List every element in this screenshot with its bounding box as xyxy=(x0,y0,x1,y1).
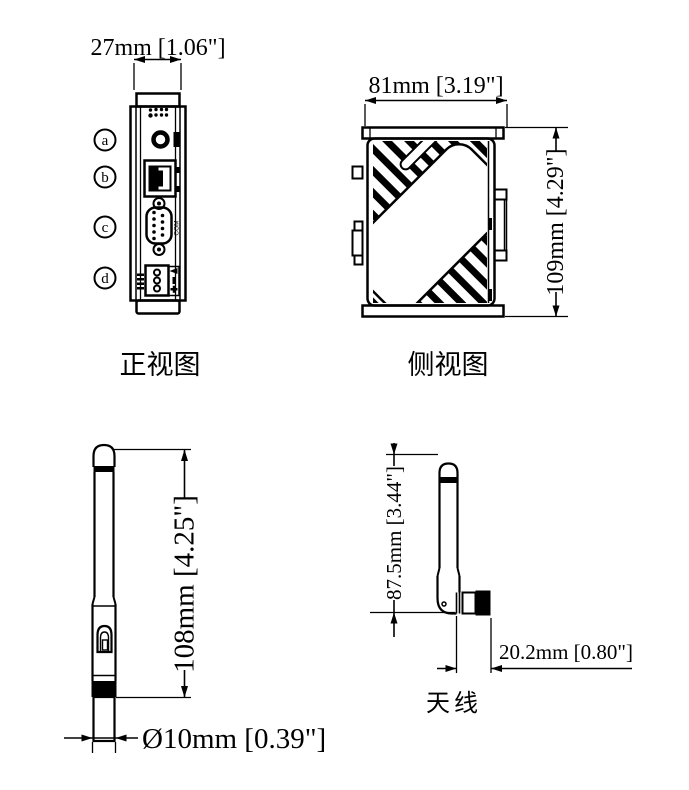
callout-b-letter: b xyxy=(101,170,109,186)
antenna-connector-base xyxy=(94,697,115,741)
antenna-connector-port xyxy=(154,132,180,147)
dimension-drawing-page: 27mm [1.06"] xyxy=(0,0,689,790)
side-width-dim-text: 81mm [3.19"] xyxy=(368,73,503,99)
antenna-front-view: 108mm [4.25"] Ø10mm [0.39"] xyxy=(64,445,326,755)
antenna-length-dimension: 108mm [4.25"] xyxy=(114,450,202,698)
side-view: 81mm [3.19"] xyxy=(339,73,571,380)
antenna2-nut xyxy=(476,591,491,616)
callout-c-letter: c xyxy=(102,220,109,236)
antenna2-connector-dimension: 20.2mm [0.80"] xyxy=(437,616,633,673)
led-indicators xyxy=(148,108,168,118)
db9-pins xyxy=(152,211,164,241)
reset-notch xyxy=(174,132,180,147)
antenna2-top-band xyxy=(440,477,458,483)
side-height-dimension: 109mm [4.29"] xyxy=(505,128,571,317)
technical-drawing-canvas: 27mm [1.06"] xyxy=(0,0,689,790)
side-width-dimension: 81mm [3.19"] xyxy=(365,73,507,127)
front-width-dimension: 27mm [1.06"] xyxy=(90,35,225,90)
com-port-label: COM xyxy=(174,220,181,235)
front-width-dim-text: 27mm [1.06"] xyxy=(90,35,225,61)
side-connector-profiles xyxy=(353,167,363,265)
antenna-front-outline xyxy=(92,445,117,741)
callout-a-letter: a xyxy=(102,133,109,149)
antenna-bottom-band xyxy=(92,681,117,697)
callout-b: b xyxy=(95,167,116,188)
side-view-label: 侧视图 xyxy=(408,350,489,380)
callout-d: d xyxy=(95,268,116,289)
antenna-bent-outline xyxy=(438,464,491,616)
antenna-hinge-detail xyxy=(98,626,112,652)
antenna-diameter-dimension: Ø10mm [0.39"] xyxy=(64,723,326,755)
ethernet-port xyxy=(145,161,181,197)
power-terminal-block xyxy=(137,266,179,296)
antenna-side-view: 87.5mm [3.44"] 20.2mm [0.80"] 天线 xyxy=(370,443,633,717)
din-rail-mount xyxy=(495,190,507,261)
antenna-diameter-dim-text: Ø10mm [0.39"] xyxy=(142,723,326,755)
antenna-top-band xyxy=(94,466,115,472)
side-slot-bottom xyxy=(488,289,492,301)
callout-c: c xyxy=(95,217,116,238)
side-device-body xyxy=(339,121,521,320)
antenna-view-label: 天线 xyxy=(426,690,482,717)
antenna2-connector xyxy=(457,591,491,616)
antenna2-height-dimension: 87.5mm [3.44"] xyxy=(370,443,455,637)
side-slot-top xyxy=(488,218,492,230)
front-view-label: 正视图 xyxy=(120,350,201,380)
callout-a: a xyxy=(95,130,116,151)
antenna2-height-dim-text: 87.5mm [3.44"] xyxy=(382,466,406,600)
side-height-dim-text: 109mm [4.29"] xyxy=(543,148,569,295)
antenna2-connector-dim-text: 20.2mm [0.80"] xyxy=(499,640,633,664)
callout-d-letter: d xyxy=(101,271,109,287)
front-view: 27mm [1.06"] xyxy=(90,35,225,380)
antenna-length-dim-text: 108mm [4.25"] xyxy=(169,495,201,673)
polarity-marks xyxy=(170,268,178,293)
